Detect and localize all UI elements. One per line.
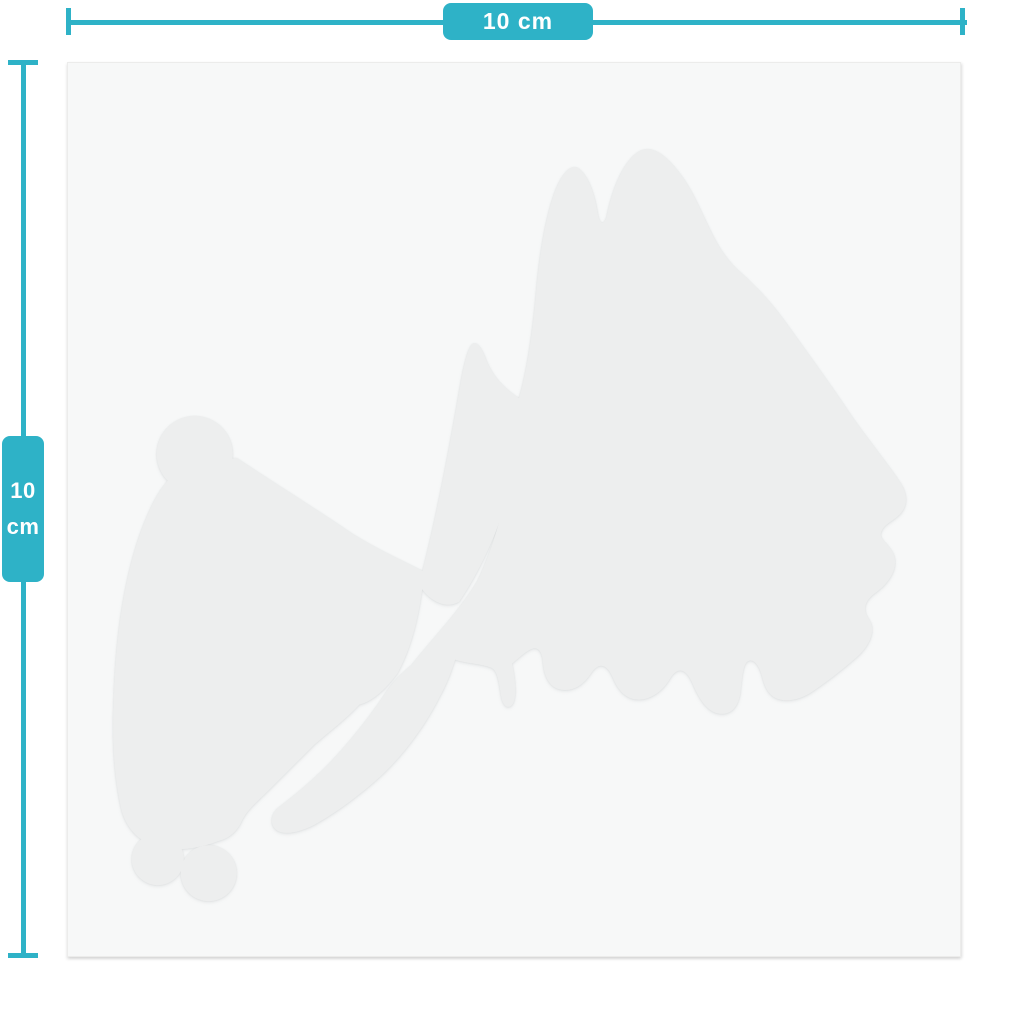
vertical-dimension-top-tick — [8, 60, 38, 65]
sticker-sheet — [67, 62, 961, 957]
horizontal-dimension-right-tick — [960, 8, 965, 35]
vertical-dimension-badge: 10 cm — [2, 436, 44, 582]
horizontal-dimension-badge: 10 cm — [443, 3, 593, 40]
silhouette-body — [113, 458, 424, 849]
silhouette-head-wing-and-tail — [272, 149, 906, 832]
product-mockup: 10 cm 10 cm — [0, 0, 1024, 1024]
vertical-dimension-value: 10 — [10, 478, 35, 504]
horizontal-dimension-label: 10 cm — [483, 8, 553, 35]
silhouette-toe-right — [181, 845, 237, 901]
silhouette-ear-bump — [157, 416, 233, 492]
silhouette-toe-left — [132, 833, 184, 885]
vertical-dimension-unit: cm — [7, 514, 40, 540]
animal-silhouette — [68, 63, 960, 956]
vertical-dimension-bottom-tick — [8, 953, 38, 958]
horizontal-dimension-left-tick — [66, 8, 71, 35]
